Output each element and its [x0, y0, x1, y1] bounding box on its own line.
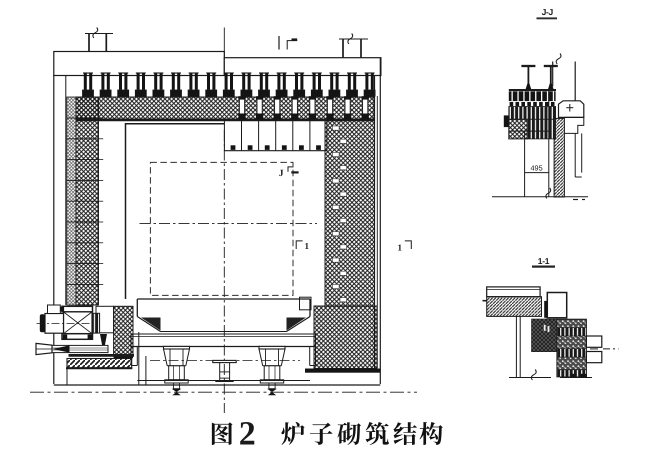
- svg-text:1: 1: [398, 243, 403, 253]
- svg-text:1-1: 1-1: [538, 256, 550, 266]
- svg-text:495: 495: [531, 163, 543, 172]
- svg-text:J: J: [279, 169, 284, 179]
- svg-text:1: 1: [305, 241, 310, 251]
- svg-text:2: 2: [239, 415, 256, 452]
- svg-text:J-J: J-J: [542, 7, 554, 17]
